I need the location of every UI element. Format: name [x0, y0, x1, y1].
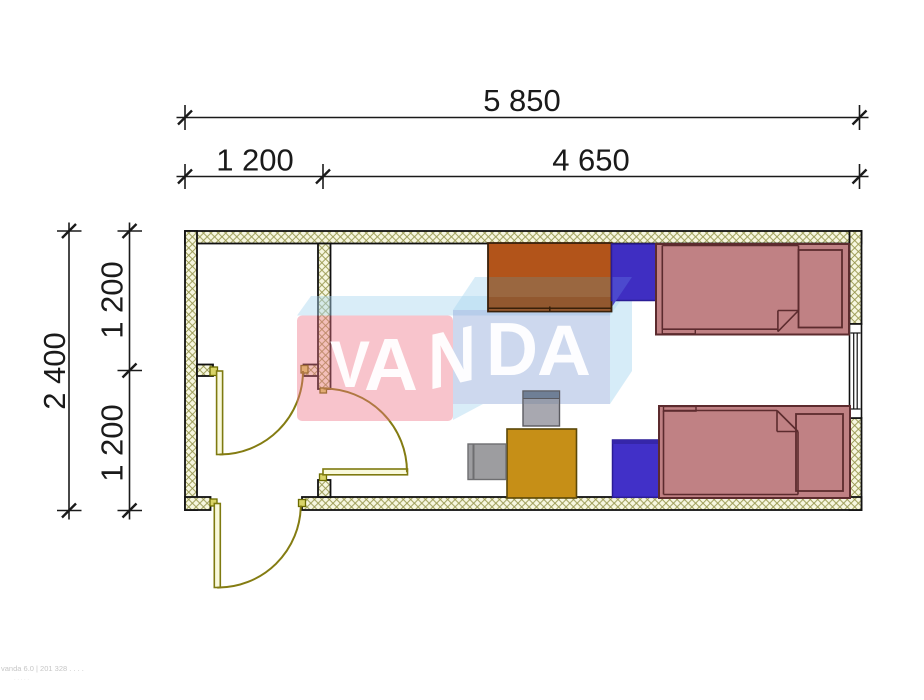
svg-text:1 200: 1 200: [216, 143, 294, 178]
svg-text:A: A: [364, 323, 418, 406]
svg-text:5 850: 5 850: [483, 83, 561, 118]
svg-text:D: D: [486, 307, 538, 391]
svg-text:A: A: [537, 312, 591, 391]
svg-text:4 650: 4 650: [552, 143, 630, 178]
svg-text:vanda 6.0 | 201 328 . . . .: vanda 6.0 | 201 328 . . . .: [1, 664, 84, 673]
svg-text:. . . . .: . . . . .: [14, 676, 29, 682]
svg-text:1 200: 1 200: [95, 261, 130, 339]
svg-text:N: N: [428, 308, 476, 407]
svg-text:1 200: 1 200: [95, 404, 130, 482]
svg-text:2 400: 2 400: [37, 332, 72, 410]
